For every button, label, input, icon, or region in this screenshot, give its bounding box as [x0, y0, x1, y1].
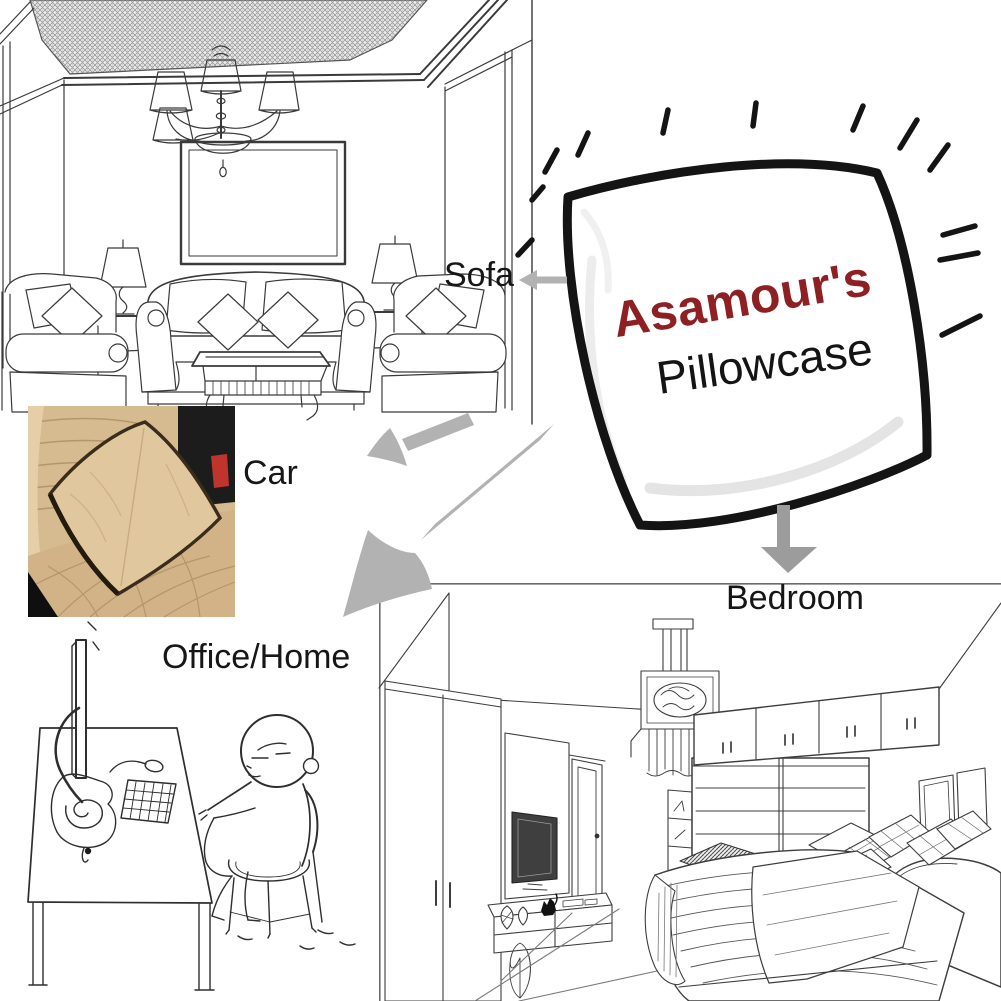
sofa-label: Sofa	[444, 258, 514, 292]
office-home-label: Office/Home	[162, 640, 350, 674]
motion-dashes	[88, 622, 99, 650]
living-room-illustration	[0, 0, 545, 455]
car-seat-photo	[28, 406, 235, 617]
car-label: Car	[243, 456, 298, 490]
bedroom-arrow-icon	[755, 500, 825, 578]
sofa-arrow-icon	[514, 262, 570, 298]
bedroom-illustration	[379, 583, 1001, 1001]
office-arrow-icon	[330, 415, 565, 630]
product-infographic: Asamour's Pillowcase Sofa Car Office/Hom…	[0, 0, 1001, 1001]
bedroom-label: Bedroom	[726, 581, 864, 615]
car-seatbelt-buckle	[211, 454, 229, 488]
